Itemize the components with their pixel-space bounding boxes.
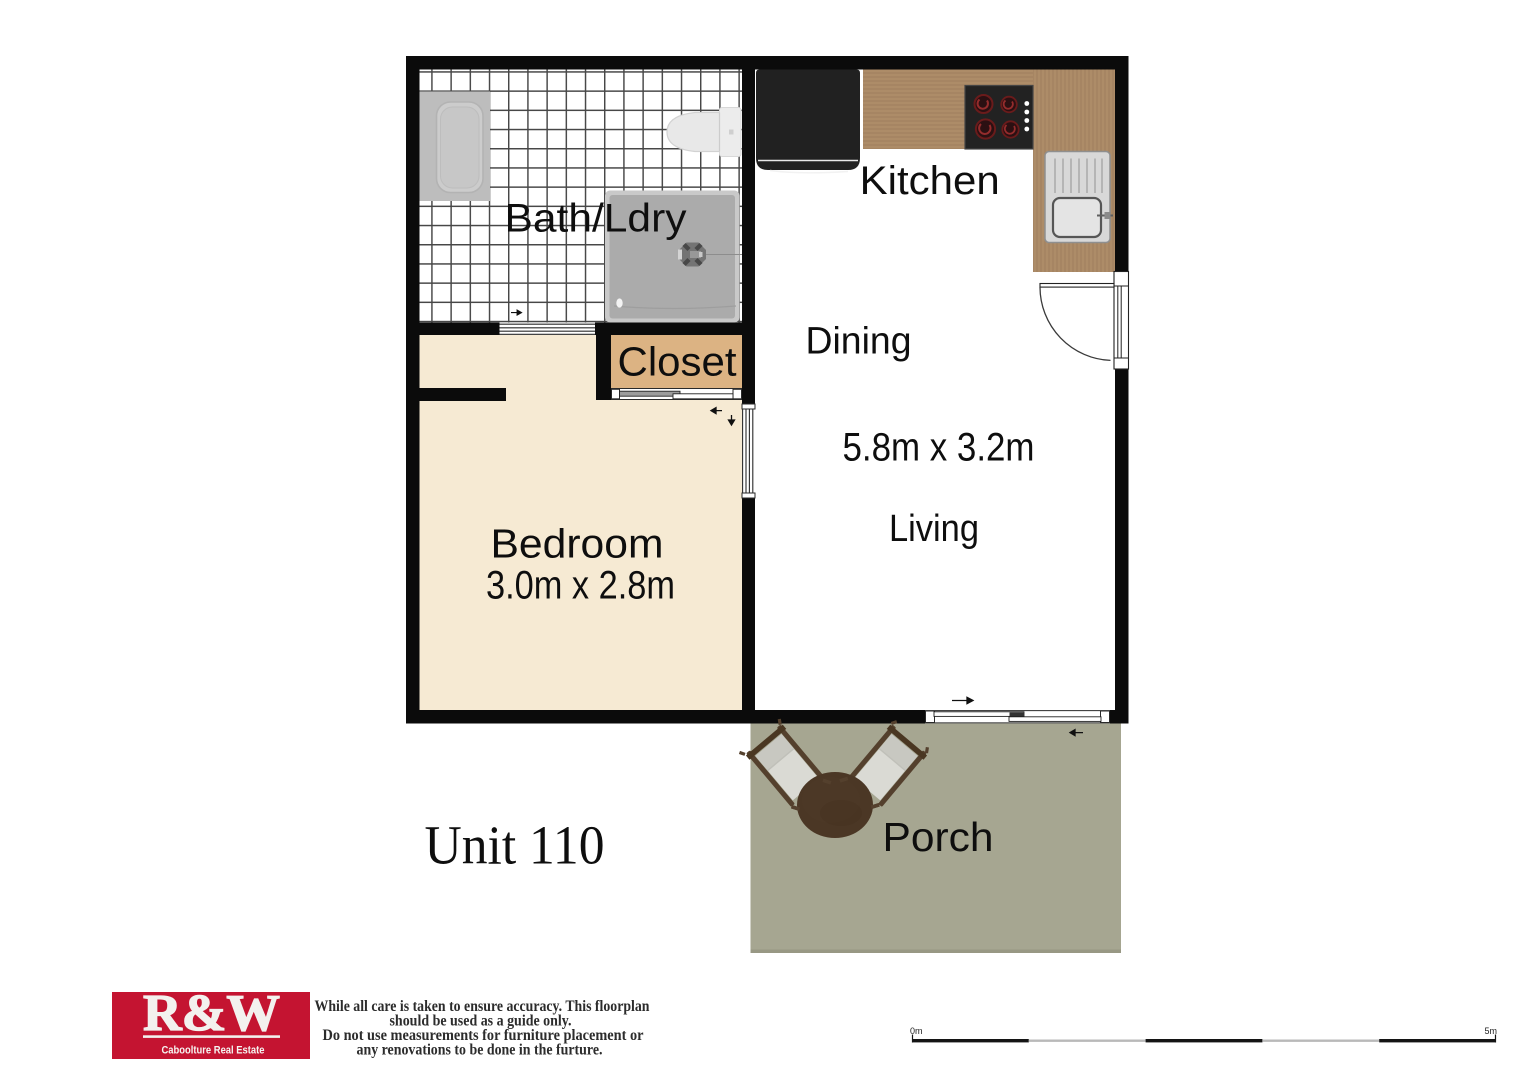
svg-text:Closet: Closet <box>618 339 738 385</box>
svg-text:Unit 110: Unit 110 <box>425 815 605 876</box>
svg-text:3.0m x 2.8m: 3.0m x 2.8m <box>486 564 675 608</box>
svg-text:Kitchen: Kitchen <box>860 159 1000 203</box>
svg-text:Caboolture Real Estate: Caboolture Real Estate <box>162 1045 265 1057</box>
svg-text:Porch: Porch <box>883 814 994 860</box>
svg-text:0m: 0m <box>910 1026 923 1036</box>
svg-text:5.8m x 3.2m: 5.8m x 3.2m <box>843 426 1035 470</box>
svg-text:any renovations to be done in: any renovations to be done in the furtur… <box>357 1042 603 1059</box>
svg-text:Bedroom: Bedroom <box>491 521 664 567</box>
svg-text:Bath/Ldry: Bath/Ldry <box>505 197 687 241</box>
svg-text:5m: 5m <box>1484 1026 1497 1036</box>
svg-text:Dining: Dining <box>806 321 912 363</box>
svg-text:Living: Living <box>889 508 979 550</box>
svg-text:R&W: R&W <box>143 985 280 1042</box>
